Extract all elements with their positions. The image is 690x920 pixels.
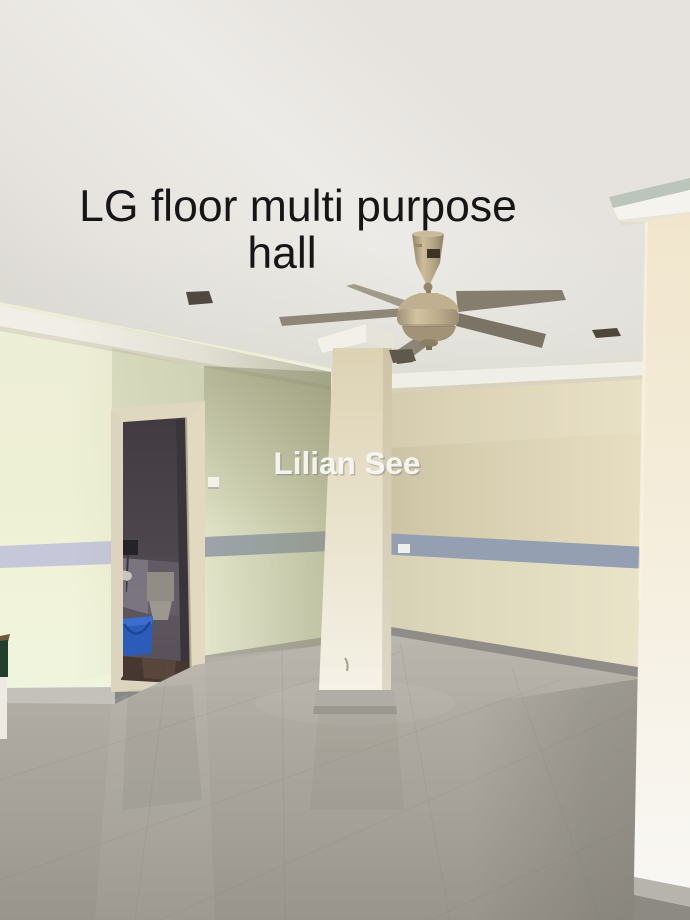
svg-text:LG floor multi purpose: LG floor multi purpose [79,182,517,231]
svg-text:Lilian See: Lilian See [273,445,420,481]
svg-text:hall: hall [247,229,316,278]
